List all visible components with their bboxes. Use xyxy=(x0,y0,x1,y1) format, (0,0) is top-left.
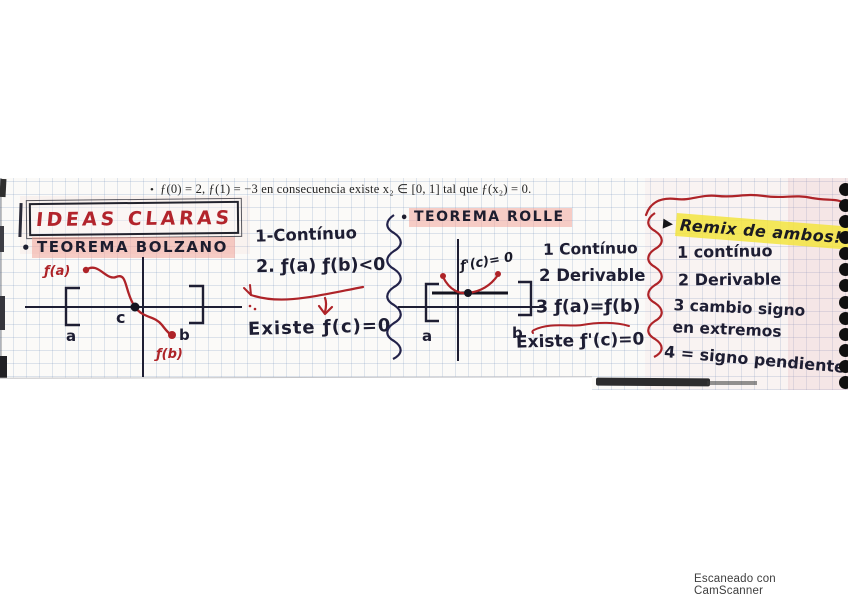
interval-bracket-right xyxy=(189,286,203,323)
remix-item-3: 3 cambio signo en extremos xyxy=(672,295,806,344)
remix-item-2: 2 Derivable xyxy=(678,270,781,290)
b-label: b xyxy=(179,326,190,344)
scan-shadow-bar-thin xyxy=(707,381,757,385)
teorema-rolle-heading: TEOREMA ROLLE xyxy=(409,208,572,227)
c-label: c xyxy=(116,308,125,327)
binding-holes xyxy=(839,183,848,389)
rolle-conclusion: Existe ƒ'(c)=0 xyxy=(516,329,645,352)
fprime-label: ƒ'(c)= 0 xyxy=(457,250,514,274)
bolzano-graph: ƒ(a) a c b ƒ(b) xyxy=(22,255,250,381)
binding-hole xyxy=(839,312,848,325)
bolzano-condition-1: 1-Contínuo xyxy=(255,223,358,246)
rolle-condition-1: 1 Contínuo xyxy=(543,239,638,259)
ideas-claras-title: IDEAS CLARAS xyxy=(35,206,234,230)
c-point-dot xyxy=(464,289,472,297)
typed-consequence-text: ƒ(0) = 2, ƒ(1) = −3 en consecuencia exis… xyxy=(160,182,531,196)
navy-squiggle-divider xyxy=(383,212,399,366)
arrow-marker-icon: ▶ xyxy=(662,216,673,232)
fb-point-dot xyxy=(168,331,176,339)
binding-hole xyxy=(839,279,848,292)
torn-edge-mark xyxy=(0,226,4,252)
typed-consequence-line: •ƒ(0) = 2, ƒ(1) = −3 en consecuencia exi… xyxy=(150,181,531,197)
squiggle-path xyxy=(648,213,662,357)
arrow-down-stem xyxy=(325,298,326,312)
fb-label: ƒ(b) xyxy=(154,347,183,362)
torn-edge-mark xyxy=(0,179,6,197)
remix-item-1: 1 contínuo xyxy=(677,241,773,262)
scan-shadow-bar xyxy=(596,378,710,387)
a-label: a xyxy=(422,327,432,345)
camscanner-watermark: Escaneado con CamScanner xyxy=(694,573,848,597)
binding-hole xyxy=(839,183,848,196)
bolzano-curve xyxy=(86,268,172,335)
binding-hole xyxy=(839,376,848,389)
ink-dot xyxy=(254,308,257,311)
binding-hole xyxy=(839,360,848,373)
scan-bottom-edge xyxy=(0,376,592,394)
binding-hole xyxy=(839,199,848,212)
bullet-icon: • xyxy=(400,211,408,226)
arrow-brace-curve xyxy=(251,287,363,300)
red-squiggle-divider xyxy=(644,210,662,368)
binding-hole xyxy=(839,247,848,260)
rolle-condition-3: 3 ƒ(a)=ƒ(b) xyxy=(536,297,641,318)
binding-hole xyxy=(839,215,848,228)
curve-end-dot-left xyxy=(440,273,446,279)
scanned-notes-page: •ƒ(0) = 2, ƒ(1) = −3 en consecuencia exi… xyxy=(0,0,848,599)
arrow-left-tip xyxy=(244,285,251,295)
rolle-condition-2: 2 Derivable xyxy=(539,266,645,285)
torn-edge-mark xyxy=(0,296,5,330)
bolzano-condition-2: 2. ƒ(a) ƒ(b)<0 xyxy=(256,255,386,277)
ideas-claras-box: IDEAS CLARAS xyxy=(29,201,239,236)
fa-label: ƒ(a) xyxy=(42,264,70,279)
c-point-dot xyxy=(131,303,140,312)
a-label: a xyxy=(66,327,76,345)
curve-end-dot-right xyxy=(495,271,501,277)
binding-hole xyxy=(839,263,848,276)
binding-hole xyxy=(839,231,848,244)
interval-bracket-left xyxy=(426,284,439,321)
bolzano-conclusion: Existe ƒ(c)=0 xyxy=(248,315,392,340)
binding-hole xyxy=(839,328,848,341)
implication-arrow xyxy=(241,281,375,321)
binding-hole xyxy=(839,344,848,357)
interval-bracket-right xyxy=(518,282,531,315)
fa-point-dot xyxy=(83,267,89,273)
binding-hole xyxy=(839,296,848,309)
ink-dot xyxy=(249,305,252,308)
bullet-icon: • xyxy=(150,184,154,196)
